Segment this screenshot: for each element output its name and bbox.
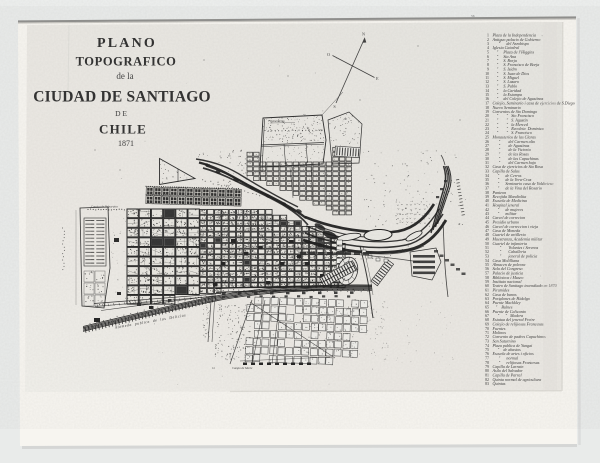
svg-text:56: 56 [471,14,475,18]
